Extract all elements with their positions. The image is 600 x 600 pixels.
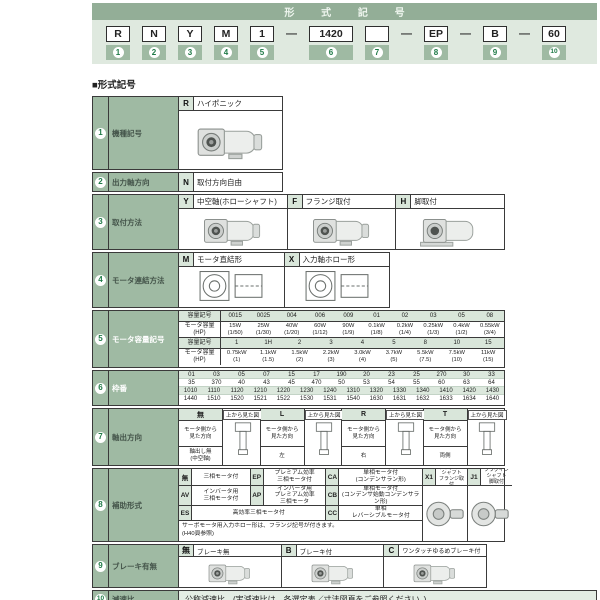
capacity-value-cell: 5.5kW (7.5) (410, 349, 441, 365)
shaft-diagram (396, 420, 416, 458)
circled-number: 5 (257, 47, 268, 58)
frame-number-cell: 1633 (434, 396, 457, 402)
frame-number-cell: 1330 (388, 388, 411, 394)
shaft-option-none: 無 モータ側から 見た方向 軸出し無 (中空軸) 上から見た図 (179, 409, 261, 465)
no-brake-motor-image (179, 557, 281, 587)
capacity-value-cell: 1.5kW (2) (284, 349, 315, 365)
capacity-code-cell: 8 (410, 338, 441, 348)
capacity-code-cell: 009 (334, 311, 362, 321)
frame-number-cell: 07 (254, 372, 279, 378)
shaft-option-labels: 無 モータ側から 見た方向 軸出し無 (中空軸) (179, 409, 223, 465)
code-box: EP (424, 26, 448, 42)
frame-number-cell: 63 (454, 380, 479, 386)
row-content: 無 モータ側から 見た方向 軸出し無 (中空軸) 上から見た図 L モータ側から… (179, 409, 504, 465)
frame-number-cell: 64 (479, 380, 504, 386)
frame-number-cell: 33 (479, 372, 504, 378)
reduction-ratio-note: 公称減速比 (実減速比は、各選定表／寸法図頁をご参照ください。) (179, 591, 596, 600)
frame-number-cell: 1530 (295, 396, 318, 402)
aux-row-3: ES 高効率三相モータ付 CC 単相 レバーシブルモータ付 (179, 506, 422, 521)
frame-number-cell: 1531 (318, 396, 341, 402)
option-code: EP (251, 469, 264, 485)
option-desc: ブレーキ付 (297, 545, 384, 556)
capacity-value-cell: 90W (1/9) (334, 322, 362, 337)
direction-label: 軸出し無 (中空軸) (179, 447, 222, 465)
row-model-series: 1 機種記号 R ハイポニック (92, 96, 283, 170)
option-code: CA (326, 469, 339, 485)
brake-motor-image (282, 557, 384, 587)
frame-number-cell: 1210 (249, 388, 272, 394)
code-box: 1420 (309, 26, 353, 42)
top-view-label: 上から見た図 (223, 410, 262, 420)
hyponic-motor-image (179, 111, 282, 169)
row-number-cell: 3 (93, 195, 109, 249)
number-square: 3 (178, 45, 202, 60)
option-header: F フランジ取付 (288, 195, 396, 209)
direction-label: 右 (342, 447, 385, 465)
capacity-table: 容量記号 001500250040060090102030508 モータ容量 (… (179, 311, 504, 367)
capacity-code-cell: 1H (252, 338, 283, 348)
plug-in-shaft-columns: X1 プラグインシャフト フランジ取付 J1 プラグインシャフト 脚取付 (423, 469, 512, 541)
mount-option-flange: F フランジ取付 (288, 195, 397, 249)
mount-option-hollow-shaft: Y 中空軸(ホローシャフト) (179, 195, 288, 249)
frame-number-cell: 1430 (481, 388, 504, 394)
row-number-cell: 8 (93, 469, 109, 541)
option-code: N (179, 173, 194, 191)
option-code: R (342, 409, 385, 421)
capacity-code-cell: 006 (306, 311, 334, 321)
option-desc: ハイポニック (194, 97, 282, 110)
row-label-text: モータ連結方法 (112, 276, 165, 285)
aux-option-grid: 無 三相モータ付 EP プレミアム効率 三相モータ付 CA 単相モータ付 (コン… (179, 469, 423, 541)
code-unit-5: 1 5 (250, 26, 274, 60)
row-label: モータ容量記号 (109, 311, 179, 367)
row-number-cell: 4 (93, 253, 109, 307)
plug-in-flange-image (423, 486, 467, 541)
capacity-value-cell: 0.55kW (3/4) (476, 322, 504, 337)
frame-number-cell: 1230 (295, 388, 318, 394)
code-box: Y (178, 26, 202, 42)
option-desc: 高効率三相モータ付 (192, 506, 325, 520)
frame-number-cell: 1240 (318, 388, 341, 394)
row-content: N 取付方向自由 (179, 173, 282, 191)
row-content: 無 ブレーキ無 B ブレーキ付 (179, 545, 486, 587)
frame-number-cell: 1420 (458, 388, 481, 394)
row-reduction-ratio: 10 減速比 公称減速比 (実減速比は、各選定表／寸法図頁をご参照ください。) (92, 590, 597, 600)
circled-number: 3 (185, 47, 196, 58)
row-label-text: 取付方法 (112, 218, 142, 227)
option-desc: 取付方向自由 (194, 173, 282, 191)
capacity-value-cell: 3.7kW (5) (378, 349, 409, 365)
row-shaft-direction: 7 軸出方向 無 モータ側から 見た方向 軸出し無 (中空軸) 上から見た図 (92, 408, 505, 466)
aux-cell: 無 三相モータ付 (179, 469, 251, 485)
number-square: 7 (365, 45, 389, 60)
option-code: C (384, 545, 399, 556)
capacity-value-cell: 3.0kW (4) (347, 349, 378, 365)
row-motor-connection: 4 モータ連結方法 M モータ直結形 X 入力軸ホロー形 (92, 252, 390, 308)
shaft-diagram-area: 上から見た図 (468, 409, 507, 465)
option-desc: インバータ用 三相モータ付 (192, 486, 250, 505)
aux-row-2: AV インバータ用 三相モータ付 AP インバータ用 プレミアム効率 三相モータ… (179, 486, 422, 506)
shaft-diagram-area: 上から見た図 (223, 409, 262, 465)
row-label: 取付方法 (109, 195, 179, 249)
capacity-code-cell: 08 (476, 311, 504, 321)
option-desc: 単相モータ付 (コンデンサ始動コンデンサラン形) (339, 486, 422, 505)
frame-number-cell: 01 (179, 372, 204, 378)
frame-number-cell: 05 (229, 372, 254, 378)
frame-number-cell: 1340 (411, 388, 434, 394)
option-desc: インバータ用 プレミアム効率 三相モータ (264, 486, 326, 505)
input-hollow-drawing (285, 267, 390, 307)
code-box: N (142, 26, 166, 42)
number-square: 6 (309, 45, 353, 60)
capacity-value-cell: 0.1kW (1/8) (362, 322, 390, 337)
form-code-banner: 形 式 記 号 (92, 3, 597, 20)
option-header: X 入力軸ホロー形 (285, 253, 390, 267)
option-header: H 脚取付 (396, 195, 504, 209)
connection-option-direct: M モータ直結形 (179, 253, 285, 307)
shaft-diagram (477, 420, 497, 458)
frame-number-cell: 54 (379, 380, 404, 386)
top-view-label: 上から見た図 (468, 410, 507, 420)
option-desc: プラグインシャフト 脚取付 (481, 469, 512, 485)
circled-number: 7 (95, 432, 106, 443)
shaft-option-labels: L モータ側から 見た方向 左 (261, 409, 305, 465)
frame-number-cell: 1520 (225, 396, 248, 402)
frame-number-cell: 1410 (434, 388, 457, 394)
row-label-text: 軸出方向 (112, 433, 142, 442)
capacity-value-cell: 2.2kW (3) (315, 349, 346, 365)
circled-number: 8 (431, 47, 442, 58)
shaft-diagram-area: 上から見た図 (305, 409, 344, 465)
frame-number-cell: 03 (204, 372, 229, 378)
option-desc: 単相 レバーシブルモータ付 (339, 506, 422, 520)
frame-number-cell: 30 (454, 372, 479, 378)
capacity-value-cell: 0.4kW (1/2) (447, 322, 475, 337)
circled-number: 9 (95, 561, 106, 572)
capacity-code-cell: 5 (378, 338, 409, 348)
circled-number: 10 (549, 47, 560, 58)
capacity-code-cell: 0025 (249, 311, 277, 321)
option-header: N 取付方向自由 (179, 173, 282, 191)
frame-number-cell: 43 (254, 380, 279, 386)
frame-number-cell: 1220 (272, 388, 295, 394)
capacity-code-cell: 2 (284, 338, 315, 348)
row-label-text: 減速比 (112, 595, 135, 600)
capacity-row-label: モータ容量 (HP) (179, 349, 221, 365)
capacity-value-row: モータ容量 (HP) 0.75kW (1)1.1kW (1.5)1.5kW (2… (179, 349, 504, 365)
hollow-shaft-motor-image (179, 209, 287, 249)
frame-number-cell: 55 (404, 380, 429, 386)
option-code: H (396, 195, 411, 208)
capacity-code-cell: 004 (278, 311, 306, 321)
row-label-text: ブレーキ有無 (112, 562, 157, 571)
row-content: M モータ直結形 X 入力軸ホロー形 (179, 253, 389, 307)
dash-separator: — (460, 26, 471, 42)
dash-separator: — (401, 26, 412, 42)
frame-number-cell: 1631 (388, 396, 411, 402)
frame-number-cell: 1440 (179, 396, 202, 402)
capacity-code-header-row: 容量記号 001500250040060090102030508 (179, 311, 504, 322)
option-code: X (285, 253, 300, 266)
option-code: F (288, 195, 303, 208)
option-code: J1 (468, 469, 481, 485)
plug-in-flange-column: X1 プラグインシャフト フランジ取付 (423, 469, 468, 541)
row-number-cell: 1 (93, 97, 109, 169)
row-mounting-method: 3 取付方法 Y 中空軸(ホローシャフト) F フランジ取付 (92, 194, 505, 250)
row-label-text: モータ容量記号 (112, 335, 165, 344)
code-unit-6: 1420 6 (309, 26, 353, 60)
number-square: 1 (106, 45, 130, 60)
number-square: 8 (424, 45, 448, 60)
dash-separator: — (519, 26, 530, 42)
top-view-label: 上から見た図 (305, 410, 344, 420)
option-code: ES (179, 506, 192, 520)
capacity-row-label: モータ容量 (HP) (179, 322, 221, 337)
shaft-option-labels: R モータ側から 見た方向 右 (342, 409, 386, 465)
frame-number-cell: 1540 (342, 396, 365, 402)
circled-number: 4 (95, 275, 106, 286)
top-view-label: 上から見た図 (386, 410, 425, 420)
frame-number-cell: 25 (404, 372, 429, 378)
code-panel: R 1 N 2 Y 3 M 4 1 5 — 1420 6 (92, 20, 597, 64)
section-title: ■形式記号 (92, 77, 597, 91)
option-desc: ワンタッチゆるめブレーキ付 (399, 545, 486, 556)
frame-number-cell: 1310 (342, 388, 365, 394)
frame-number-cell: 53 (354, 380, 379, 386)
frame-number-cell: 370 (204, 380, 229, 386)
row-frame-number: 6 枠番 0103050715171902023252703033 353704… (92, 370, 505, 406)
capacity-code-cell: 4 (347, 338, 378, 348)
viewed-from-motor-label: モータ側から 見た方向 (424, 421, 467, 447)
mount-option-foot: H 脚取付 (396, 195, 504, 249)
row-label-text: 出力軸方向 (112, 178, 150, 187)
brake-option-one-touch-release: C ワンタッチゆるめブレーキ付 (384, 545, 486, 587)
row-number-cell: 9 (93, 545, 109, 587)
option-desc: プレミアム効率 三相モータ付 (264, 469, 326, 485)
plug-in-foot-column: J1 プラグインシャフト 脚取付 (468, 469, 512, 541)
option-desc: 三相モータ付 (192, 469, 250, 485)
code-box: 60 (542, 26, 566, 42)
option-desc: ブレーキ無 (194, 545, 281, 556)
row-label-text: 補助形式 (112, 501, 142, 510)
row-output-shaft-direction: 2 出力軸方向 N 取付方向自由 (92, 172, 283, 192)
aux-cell: CB 単相モータ付 (コンデンサ始動コンデンサラン形) (326, 486, 422, 505)
frame-number-cell: 1120 (225, 388, 248, 394)
shaft-diagram (233, 420, 253, 458)
option-code: L (261, 409, 304, 421)
frame-number-cell: 50 (329, 380, 354, 386)
frame-number-cell: 40 (229, 380, 254, 386)
circled-number: 1 (95, 128, 106, 139)
direction-label: 両側 (424, 447, 467, 465)
code-box: 1 (250, 26, 274, 42)
capacity-row-label: 容量記号 (179, 338, 221, 348)
option-header: Y 中空軸(ホローシャフト) (179, 195, 287, 209)
capacity-code-cell: 01 (362, 311, 390, 321)
row-label-text: 枠番 (112, 384, 127, 393)
frame-number-cell: 15 (279, 372, 304, 378)
release-brake-motor-image (384, 557, 486, 587)
row-number-cell: 5 (93, 311, 109, 367)
frame-number-cell: 1320 (365, 388, 388, 394)
row-label: ブレーキ有無 (109, 545, 179, 587)
viewed-from-motor-label: モータ側から 見た方向 (261, 421, 304, 447)
capacity-code-header-row: 容量記号 11H234581015 (179, 338, 504, 349)
frame-number-cell: 1640 (481, 396, 504, 402)
frame-number-cell: 1110 (202, 388, 225, 394)
code-unit-8: EP 8 (424, 26, 448, 60)
option-code: 無 (179, 409, 222, 421)
frame-number-cell: 60 (429, 380, 454, 386)
option-header: J1 プラグインシャフト 脚取付 (468, 469, 512, 486)
frame-number-cell: 45 (279, 380, 304, 386)
row-label: モータ連結方法 (109, 253, 179, 307)
circled-number: 8 (95, 500, 106, 511)
capacity-row-label: 容量記号 (179, 311, 221, 321)
shaft-option-labels: T モータ側から 見た方向 両側 (424, 409, 468, 465)
circled-number: 1 (113, 47, 124, 58)
catalog-page: 形 式 記 号 R 1 N 2 Y 3 M 4 1 5 — (0, 0, 600, 600)
option-header: M モータ直結形 (179, 253, 284, 267)
code-box: M (214, 26, 238, 42)
aux-cell: AV インバータ用 三相モータ付 (179, 486, 251, 505)
frame-number-cell: 1510 (202, 396, 225, 402)
row-number-cell: 10 (93, 591, 109, 600)
capacity-value-cell: 0.2kW (1/4) (391, 322, 419, 337)
capacity-value-cell: 40W (1/20) (278, 322, 306, 337)
row-content: R ハイポニック (179, 97, 282, 169)
page-content: 形 式 記 号 R 1 N 2 Y 3 M 4 1 5 — (92, 3, 597, 600)
option-header: X1 プラグインシャフト フランジ取付 (423, 469, 467, 486)
aux-cell: CC 単相 レバーシブルモータ付 (326, 506, 422, 520)
servo-note: サーボモータ用入力ホロー形は、フランジ記号が付きます。 (H40頁参照) (179, 521, 422, 541)
frame-number-cell: 17 (304, 372, 329, 378)
direction-label: 左 (261, 447, 304, 465)
frame-number-cell: 20 (354, 372, 379, 378)
row-content: Y 中空軸(ホローシャフト) F フランジ取付 (179, 195, 504, 249)
capacity-value-cell: 7.5kW (10) (441, 349, 472, 365)
frame-number-cell: 1632 (411, 396, 434, 402)
option-header: B ブレーキ付 (282, 545, 384, 557)
viewed-from-motor-label: モータ側から 見た方向 (342, 421, 385, 447)
capacity-value-cell: 1.1kW (1.5) (252, 349, 283, 365)
option-code: X1 (423, 469, 436, 485)
option-desc: 中空軸(ホローシャフト) (194, 195, 287, 208)
row-auxiliary-type: 8 補助形式 無 三相モータ付 EP プレミアム効率 三相モータ付 (92, 468, 505, 542)
frame-number-cell: 270 (429, 372, 454, 378)
row-number-cell: 7 (93, 409, 109, 465)
row-label: 出力軸方向 (109, 173, 179, 191)
viewed-from-motor-label: モータ側から 見た方向 (179, 421, 222, 447)
capacity-code-cell: 10 (441, 338, 472, 348)
option-code: CC (326, 506, 339, 520)
frame-number-cell: 470 (304, 380, 329, 386)
number-square: 10 (542, 45, 566, 60)
code-box-empty (365, 26, 389, 42)
option-desc: フランジ取付 (303, 195, 396, 208)
capacity-code-cell: 02 (391, 311, 419, 321)
banner-title: 形 式 記 号 (272, 4, 416, 19)
option-header: C ワンタッチゆるめブレーキ付 (384, 545, 486, 557)
capacity-value-cell: 15W (1/50) (221, 322, 249, 337)
option-code: 無 (179, 545, 194, 556)
option-desc: モータ直結形 (194, 253, 284, 266)
option-code: B (282, 545, 297, 556)
code-unit-9: B 9 (483, 26, 507, 60)
row-label: 補助形式 (109, 469, 179, 541)
code-unit-4: M 4 (214, 26, 238, 60)
circled-number: 5 (95, 334, 106, 345)
code-unit-2: N 2 (142, 26, 166, 60)
brake-option-brake: B ブレーキ付 (282, 545, 385, 587)
model-code-table: 1 機種記号 R ハイポニック 2 出力軸方向 N 取付方向自由 (92, 96, 597, 600)
capacity-code-cell: 05 (447, 311, 475, 321)
row-label: 機種記号 (109, 97, 179, 169)
circled-number: 9 (490, 47, 501, 58)
frame-number-cell: 1630 (365, 396, 388, 402)
code-box: R (106, 26, 130, 42)
circled-number: 10 (95, 594, 106, 600)
aux-cell: CA 単相モータ付 (コンデンサラン形) (326, 469, 422, 485)
capacity-value-cell: 0.25kW (1/3) (419, 322, 447, 337)
aux-row-1: 無 三相モータ付 EP プレミアム効率 三相モータ付 CA 単相モータ付 (コン… (179, 469, 422, 486)
option-code: M (179, 253, 194, 266)
code-unit-10: 60 10 (542, 26, 566, 60)
foot-mount-motor-image (396, 209, 504, 249)
option-desc: 脚取付 (411, 195, 504, 208)
connection-option-input-hollow: X 入力軸ホロー形 (285, 253, 390, 307)
capacity-value-cell: 25W (1/30) (249, 322, 277, 337)
shaft-option-right: R モータ側から 見た方向 右 上から見た図 (342, 409, 424, 465)
frame-number-cell: 1634 (458, 396, 481, 402)
capacity-code-cell: 15 (473, 338, 504, 348)
code-unit-7: 7 (365, 26, 389, 60)
capacity-code-cell: 1 (221, 338, 252, 348)
option-code: T (424, 409, 467, 421)
circled-number: 2 (149, 47, 160, 58)
brake-option-none: 無 ブレーキ無 (179, 545, 282, 587)
aux-cell: EP プレミアム効率 三相モータ付 (251, 469, 327, 485)
shaft-diagram (314, 420, 334, 458)
frame-number-cell: 23 (379, 372, 404, 378)
dash-separator: — (286, 26, 297, 42)
circled-number: 7 (372, 47, 383, 58)
code-units: R 1 N 2 Y 3 M 4 1 5 — 1420 6 (106, 26, 566, 60)
number-square: 5 (250, 45, 274, 60)
option-desc: 入力軸ホロー形 (300, 253, 390, 266)
code-unit-1: R 1 (106, 26, 130, 60)
circled-number: 3 (95, 217, 106, 228)
option-header: 無 ブレーキ無 (179, 545, 281, 557)
row-label-text: 機種記号 (112, 129, 142, 138)
row-label: 枠番 (109, 371, 179, 405)
frame-number-cell: 1522 (272, 396, 295, 402)
frame-number-cell: 1010 (179, 388, 202, 394)
code-unit-3: Y 3 (178, 26, 202, 60)
number-square: 9 (483, 45, 507, 60)
capacity-value-cell: 60W (1/12) (306, 322, 334, 337)
number-square: 2 (142, 45, 166, 60)
shaft-option-left: L モータ側から 見た方向 左 上から見た図 (261, 409, 343, 465)
frame-number-table: 0103050715171902023252703033 35370404345… (179, 371, 504, 405)
option-code: AV (179, 486, 192, 505)
row-label: 減速比 (109, 591, 179, 600)
flange-motor-image (288, 209, 396, 249)
option-code: R (179, 97, 194, 110)
capacity-code-cell: 0015 (221, 311, 249, 321)
aux-cell: ES 高効率三相モータ付 (179, 506, 326, 520)
capacity-code-cell: 03 (419, 311, 447, 321)
